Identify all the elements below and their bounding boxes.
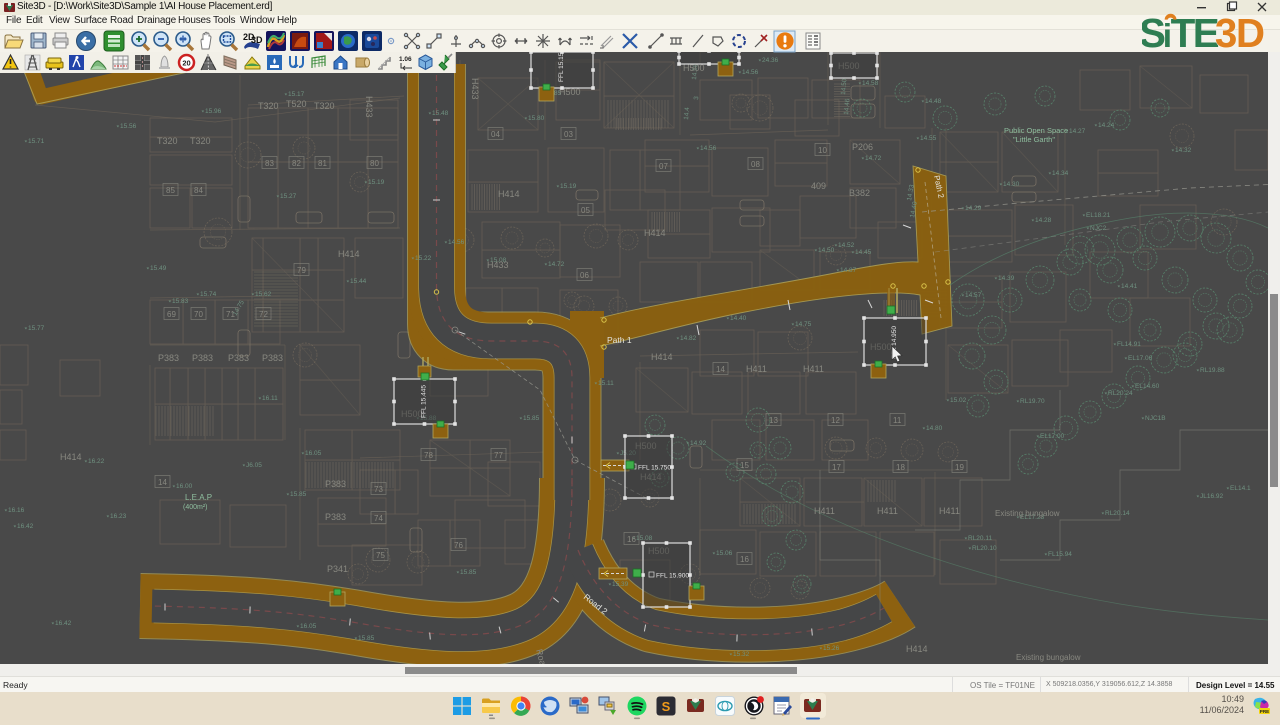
- svg-text:15.44: 15.44: [350, 278, 367, 285]
- svg-text:10: 10: [818, 146, 827, 155]
- svg-text:P341: P341: [327, 564, 348, 574]
- svg-text:16.23: 16.23: [110, 513, 127, 520]
- svg-text:FL14.91: FL14.91: [1117, 341, 1141, 348]
- svg-text:PRE: PRE: [1260, 709, 1269, 714]
- svg-text:03: 03: [564, 130, 573, 139]
- svg-text:H414: H414: [338, 249, 360, 259]
- svg-text:16.42: 16.42: [55, 620, 72, 627]
- svg-text:NJC2: NJC2: [1090, 225, 1107, 232]
- svg-text:76: 76: [454, 541, 463, 550]
- svg-text:15.71: 15.71: [28, 138, 45, 145]
- svg-text:14.56: 14.56: [700, 145, 717, 152]
- svg-text:15.77: 15.77: [28, 325, 45, 332]
- svg-text:RL20.10: RL20.10: [972, 545, 997, 552]
- svg-text:73: 73: [374, 485, 383, 494]
- svg-text:(400m²): (400m²): [183, 504, 208, 511]
- svg-text:79: 79: [297, 266, 306, 275]
- svg-text:20: 20: [182, 59, 190, 68]
- svg-text:14.4: 14.4: [683, 107, 691, 121]
- svg-text:14.72: 14.72: [548, 261, 565, 268]
- svg-text:78: 78: [424, 451, 433, 460]
- svg-text:15.08: 15.08: [636, 535, 653, 542]
- svg-text:14.50: 14.50: [840, 78, 848, 95]
- svg-text:14.56: 14.56: [742, 69, 759, 76]
- svg-text:18: 18: [896, 463, 905, 472]
- svg-text:Path 1: Path 1: [607, 335, 632, 345]
- svg-text:80: 80: [370, 159, 379, 168]
- svg-text:RL20.11: RL20.11: [968, 535, 992, 542]
- svg-text:14.92: 14.92: [690, 440, 707, 447]
- svg-text:1.06: 1.06: [399, 56, 412, 63]
- svg-text:H411: H411: [746, 364, 767, 374]
- svg-text:RL19.88: RL19.88: [1200, 367, 1225, 374]
- svg-text:16.11: 16.11: [262, 395, 278, 402]
- svg-text:14.50: 14.50: [818, 247, 835, 254]
- svg-text:08: 08: [751, 160, 760, 169]
- svg-text:16.22: 16.22: [88, 458, 105, 465]
- svg-text:14.52: 14.52: [838, 242, 855, 249]
- svg-text:15.26: 15.26: [823, 645, 840, 652]
- svg-text:Existing bungalow: Existing bungalow: [995, 509, 1060, 518]
- svg-text:14.58: 14.58: [862, 80, 879, 87]
- svg-text:Public Open Space: Public Open Space: [1004, 126, 1068, 135]
- svg-text:14: 14: [716, 365, 725, 374]
- svg-text:P206: P206: [852, 142, 873, 152]
- svg-text:15.48: 15.48: [432, 110, 449, 117]
- svg-text:16.05: 16.05: [300, 623, 317, 630]
- svg-text:69: 69: [167, 310, 176, 319]
- svg-text:RL19.70: RL19.70: [1020, 398, 1045, 405]
- svg-text:H411: H411: [939, 506, 960, 516]
- svg-text:84: 84: [194, 186, 203, 195]
- svg-text:14.29: 14.29: [965, 205, 982, 212]
- svg-text:14.46: 14.46: [843, 98, 851, 115]
- svg-text:24.36: 24.36: [762, 57, 779, 64]
- svg-text:14.75: 14.75: [795, 321, 812, 328]
- svg-text:81: 81: [318, 159, 327, 168]
- svg-text:15.49: 15.49: [150, 265, 167, 272]
- svg-text:T520: T520: [286, 99, 307, 109]
- svg-text:P383: P383: [158, 353, 179, 363]
- svg-text:FFL 15.445: FFL 15.445: [421, 385, 428, 418]
- svg-text:P383: P383: [325, 479, 346, 489]
- svg-text:JL16.92: JL16.92: [1200, 493, 1224, 500]
- svg-text:16: 16: [627, 535, 636, 544]
- svg-text:19: 19: [955, 463, 964, 472]
- svg-text:14.80: 14.80: [926, 425, 943, 432]
- svg-text:T320: T320: [314, 101, 335, 111]
- svg-text:14.82: 14.82: [680, 335, 697, 342]
- svg-text:75: 75: [376, 551, 385, 560]
- svg-text:14.48: 14.48: [925, 98, 942, 105]
- svg-text:409: 409: [811, 181, 826, 191]
- svg-text:15.02: 15.02: [950, 397, 967, 404]
- svg-text:FFL 15.150: FFL 15.150: [558, 52, 565, 82]
- svg-text:15.32: 15.32: [733, 651, 750, 658]
- svg-text:P383: P383: [228, 353, 249, 363]
- svg-text:82: 82: [292, 159, 301, 168]
- svg-text:NJC1B: NJC1B: [1145, 415, 1166, 422]
- svg-text:13: 13: [769, 416, 778, 425]
- svg-text:B382: B382: [849, 188, 870, 198]
- svg-text:06: 06: [580, 271, 589, 280]
- svg-text:17: 17: [832, 463, 841, 472]
- svg-text:H433: H433: [470, 78, 480, 100]
- svg-text:L.E.A.P: L.E.A.P: [185, 493, 212, 502]
- svg-text:14.55: 14.55: [920, 135, 937, 142]
- svg-text:14: 14: [158, 478, 167, 487]
- svg-text:H414: H414: [906, 644, 928, 654]
- svg-text:71: 71: [226, 310, 235, 319]
- svg-text:FFL 15.750: FFL 15.750: [638, 465, 671, 472]
- svg-text:83: 83: [265, 159, 274, 168]
- svg-text:H433: H433: [487, 260, 509, 270]
- svg-text:14.57: 14.57: [965, 292, 982, 299]
- svg-text:3D: 3D: [251, 35, 263, 45]
- svg-text:15.74: 15.74: [200, 291, 217, 298]
- svg-text:H414: H414: [644, 228, 666, 238]
- svg-text:14.72: 14.72: [865, 155, 882, 162]
- svg-text:T320: T320: [157, 136, 178, 146]
- svg-text:H411: H411: [877, 506, 898, 516]
- svg-text:FL15.94: FL15.94: [1048, 551, 1072, 558]
- svg-text:14.32: 14.32: [1175, 147, 1192, 154]
- svg-text:P383: P383: [192, 353, 213, 363]
- svg-text:15.27: 15.27: [280, 193, 297, 200]
- svg-text:T320: T320: [258, 101, 279, 111]
- svg-text:14.56: 14.56: [448, 239, 465, 246]
- svg-text:H433: H433: [364, 96, 374, 118]
- svg-text:14.24: 14.24: [1098, 122, 1115, 129]
- svg-text:H414: H414: [498, 189, 520, 199]
- svg-text:EL14.60: EL14.60: [1135, 383, 1160, 390]
- svg-text:16.00: 16.00: [176, 483, 193, 490]
- svg-text:77: 77: [494, 451, 503, 460]
- svg-text:RL20.14: RL20.14: [1105, 510, 1130, 517]
- svg-text:16: 16: [740, 555, 749, 564]
- svg-text:H411: H411: [814, 506, 835, 516]
- svg-text:15.85: 15.85: [358, 635, 375, 642]
- svg-text:16.05: 16.05: [305, 450, 322, 457]
- svg-text:15.17: 15.17: [288, 91, 305, 98]
- svg-text:T320: T320: [190, 136, 211, 146]
- svg-text:07: 07: [659, 162, 668, 171]
- svg-text:14.45: 14.45: [855, 249, 872, 256]
- svg-text:3D: 3D: [1215, 12, 1264, 50]
- svg-text:15.96: 15.96: [205, 108, 222, 115]
- svg-text:15.85: 15.85: [290, 491, 307, 498]
- svg-text:16.42: 16.42: [17, 523, 34, 530]
- svg-text:15.85: 15.85: [523, 415, 540, 422]
- svg-text:H414: H414: [651, 352, 673, 362]
- svg-text:S: S: [1142, 12, 1165, 50]
- svg-text:85: 85: [166, 186, 175, 195]
- svg-text:EL14.1: EL14.1: [1230, 485, 1251, 492]
- svg-text:15.06: 15.06: [716, 550, 733, 557]
- svg-text:15: 15: [740, 461, 749, 470]
- svg-text:H414: H414: [60, 452, 82, 462]
- svg-text:RL20.24: RL20.24: [1108, 390, 1133, 397]
- svg-text:70: 70: [194, 310, 203, 319]
- svg-text:EL17.06: EL17.06: [1128, 355, 1153, 362]
- svg-text:14.39: 14.39: [998, 275, 1015, 282]
- svg-text:TE: TE: [1171, 12, 1219, 50]
- svg-text:14.87: 14.87: [840, 267, 857, 274]
- svg-text:15.39: 15.39: [612, 581, 629, 588]
- svg-text:J6.05: J6.05: [246, 462, 262, 469]
- svg-text:S: S: [662, 699, 671, 714]
- svg-text:15.83: 15.83: [172, 298, 189, 305]
- svg-text:15.62: 15.62: [255, 291, 272, 298]
- svg-text:15.85: 15.85: [460, 569, 477, 576]
- svg-text:15.22: 15.22: [415, 255, 432, 262]
- svg-text:15.19: 15.19: [368, 179, 385, 186]
- svg-text:15.19: 15.19: [560, 183, 577, 190]
- svg-text:74: 74: [374, 514, 383, 523]
- svg-text:15.11: 15.11: [598, 380, 614, 387]
- svg-text:EL18.21: EL18.21: [1086, 212, 1111, 219]
- svg-text:H411: H411: [803, 364, 824, 374]
- svg-text:14.40: 14.40: [730, 315, 747, 322]
- svg-text:11: 11: [893, 416, 902, 425]
- svg-text:14.28: 14.28: [1035, 217, 1052, 224]
- svg-text:"Little Garth": "Little Garth": [1013, 135, 1055, 144]
- svg-text:P383: P383: [262, 353, 283, 363]
- svg-text:16.16: 16.16: [8, 507, 25, 514]
- svg-text:P383: P383: [325, 512, 346, 522]
- svg-text:72: 72: [259, 310, 268, 319]
- svg-text:12: 12: [831, 416, 840, 425]
- svg-text:14.41: 14.41: [1121, 283, 1138, 290]
- svg-text:15.80: 15.80: [528, 115, 545, 122]
- svg-text:Existing bungalow: Existing bungalow: [1016, 653, 1081, 662]
- svg-text:14.34: 14.34: [1052, 170, 1069, 177]
- svg-text:FFL 15.900: FFL 15.900: [656, 573, 689, 580]
- svg-text:EL17.00: EL17.00: [1040, 433, 1065, 440]
- svg-text:14.30: 14.30: [1003, 181, 1020, 188]
- svg-text:14.27: 14.27: [1069, 128, 1086, 135]
- svg-text:05: 05: [581, 206, 590, 215]
- svg-text:15.56: 15.56: [120, 123, 137, 130]
- svg-text:04: 04: [491, 130, 500, 139]
